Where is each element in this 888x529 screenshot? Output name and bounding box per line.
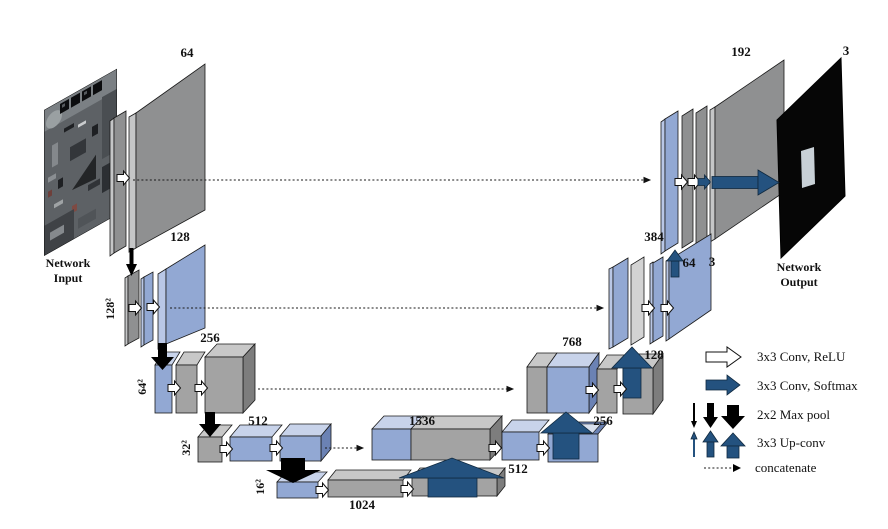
legend-maxpool-label: 2x2 Max pool — [757, 407, 830, 422]
legend-concatenate-icon — [704, 464, 741, 472]
unet-architecture-diagram: 64 128 256 512 1024 1536 512 256 768 128… — [0, 0, 888, 529]
legend-conv-relu-label: 3x3 Conv, ReLU — [757, 349, 846, 364]
encoder-level1-planes — [110, 64, 205, 256]
dec2-out-label: 3 — [709, 254, 716, 269]
decoder-level2-planes — [609, 234, 711, 349]
legend: 3x3 Conv, ReLU 3x3 Conv, Softmax 2x2 Max… — [691, 347, 858, 475]
dec4-conv-label: 512 — [508, 461, 528, 476]
output-caption-line2: Output — [780, 275, 817, 289]
encoder-level3-boxes — [155, 344, 255, 413]
bottleneck-channels-label: 1024 — [349, 497, 376, 512]
dec2-concat-label: 384 — [644, 229, 664, 244]
output-channels-label: 3 — [843, 43, 850, 58]
size-label-16: 16² — [253, 479, 267, 495]
input-caption-line1: Network — [46, 256, 91, 270]
diagram-canvas: 64 128 256 512 1024 1536 512 256 768 128… — [0, 0, 888, 529]
segmentation-region — [801, 147, 815, 188]
dec3-upconv-label: 128 — [644, 347, 664, 362]
enc4-channels-label: 512 — [248, 413, 268, 428]
legend-maxpool-icon — [691, 403, 745, 429]
dec3-concat-label: 768 — [562, 334, 582, 349]
legend-conv-relu-icon — [706, 347, 741, 367]
decoder-level1-planes — [661, 60, 784, 254]
encoder-level4-boxes — [198, 424, 331, 462]
network-output-image — [777, 58, 845, 258]
size-label-32: 32² — [179, 440, 193, 456]
dec4-concat-label: 1536 — [409, 413, 436, 428]
legend-concatenate-label: concatenate — [755, 460, 817, 475]
encoder-level2-slabs — [125, 245, 205, 349]
legend-conv-softmax-icon — [706, 375, 740, 395]
legend-upconv-label: 3x3 Up-conv — [757, 435, 826, 450]
enc1-channels-label: 64 — [181, 45, 195, 60]
enc3-channels-label: 256 — [200, 330, 220, 345]
dec1-concat-label: 192 — [731, 44, 751, 59]
output-caption-line1: Network — [777, 260, 822, 274]
enc2-channels-label: 128 — [170, 229, 190, 244]
dec4-upconv-label: 256 — [593, 413, 613, 428]
legend-conv-softmax-label: 3x3 Conv, Softmax — [757, 378, 858, 393]
size-label-128: 128² — [103, 298, 117, 320]
legend-upconv-icon — [691, 431, 745, 458]
input-caption-line2: Input — [54, 271, 83, 285]
size-label-64: 64² — [135, 379, 149, 395]
network-input-image — [44, 69, 117, 256]
dec2-conv-label: 64 — [683, 255, 697, 270]
